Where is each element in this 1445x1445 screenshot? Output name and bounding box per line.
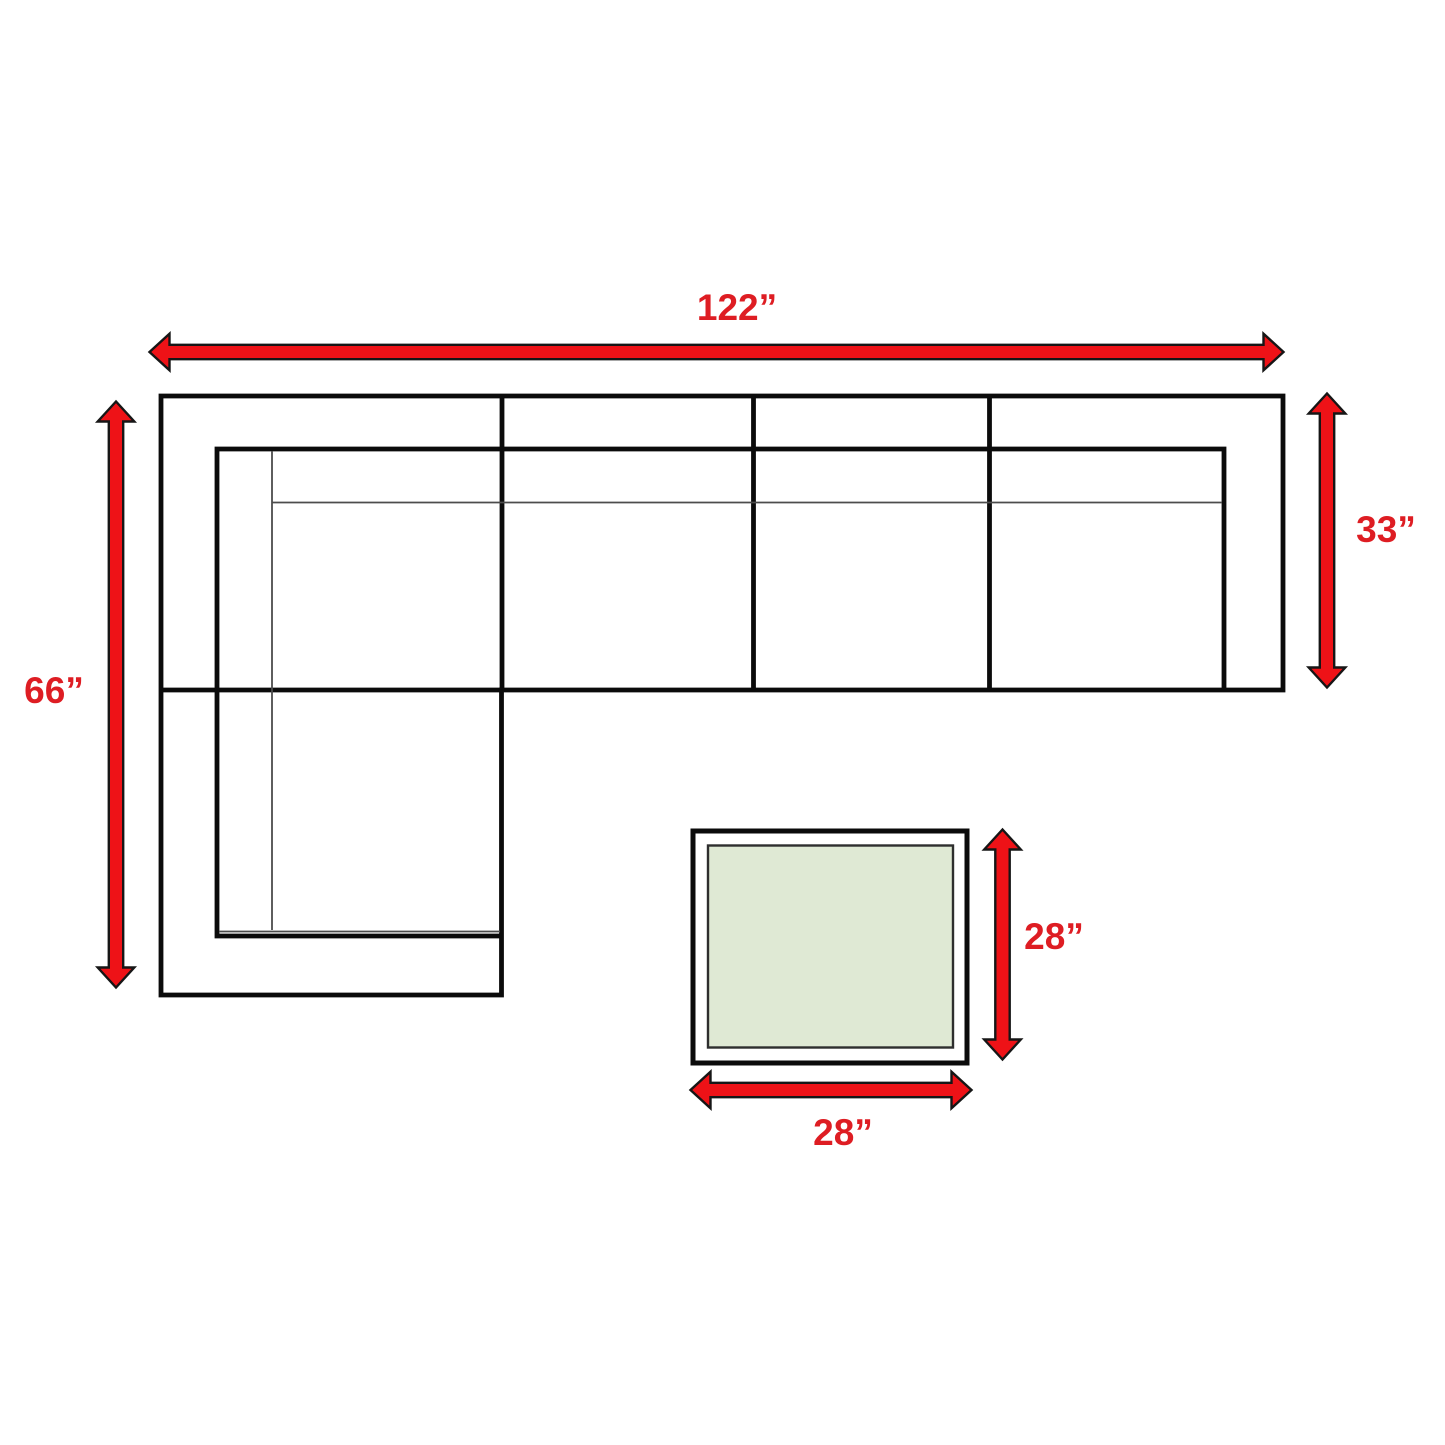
svg-text:33”: 33” [1356,509,1416,550]
svg-text:122”: 122” [697,287,777,328]
svg-text:66”: 66” [24,670,84,711]
svg-text:28”: 28” [1024,916,1084,957]
svg-text:28”: 28” [813,1112,873,1153]
